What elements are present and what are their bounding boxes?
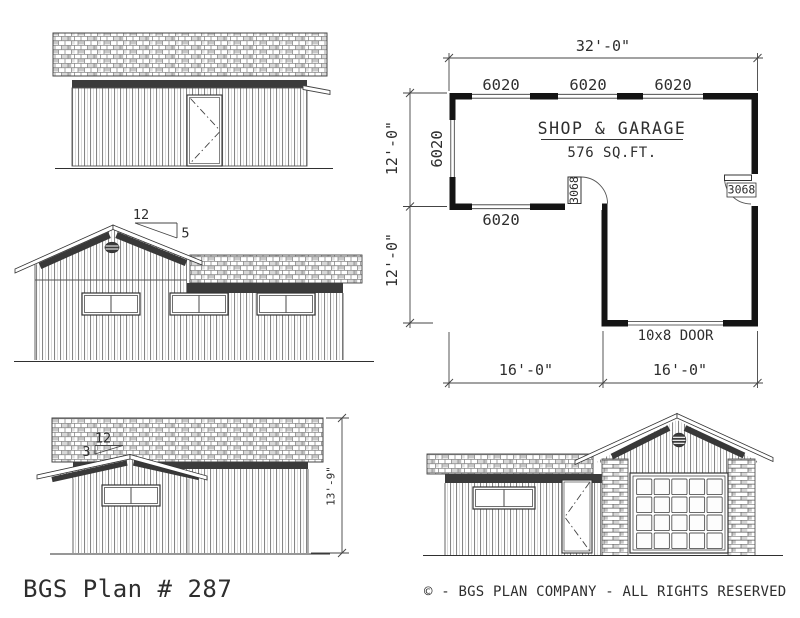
drawing-sheet: 12 5 12 3 13'-9" — [0, 0, 800, 618]
window-1 — [82, 293, 140, 315]
roof-shingle-band — [53, 33, 327, 76]
window-3 — [257, 293, 315, 315]
plan-number: BGS Plan # 287 — [23, 575, 232, 603]
eave-shadow-band — [72, 80, 307, 88]
height-dim-label: 13'-9" — [325, 466, 338, 506]
garage-door — [630, 473, 728, 553]
dim-bottom-right-label: 16'-0" — [653, 361, 707, 379]
dim-overall-width-label: 32'-0" — [576, 37, 630, 55]
shed-roof-shingles — [190, 255, 362, 283]
siding-strip-above-door — [628, 461, 728, 474]
window-1 — [473, 487, 535, 509]
door-swing-arc — [581, 177, 608, 204]
attic-vent — [672, 433, 686, 447]
wall-step — [602, 204, 608, 327]
siding-wall — [73, 469, 308, 553]
window-opening-left — [450, 120, 456, 177]
room-area: 576 SQ.FT. — [567, 145, 656, 161]
window-2 — [170, 293, 228, 315]
floor-plan: 3068 3068 10x8 DOOR SHOP & GARAGE 576 SQ… — [383, 37, 763, 388]
pitch-run-label: 12 — [95, 431, 111, 447]
interior-door-label: 3068 — [567, 176, 581, 204]
dimension-bottom-widths: 16'-0" 16'-0" — [443, 331, 763, 388]
window-label-top-2: 6020 — [569, 76, 606, 94]
window-label-middle: 6020 — [482, 211, 519, 229]
entry-door — [187, 95, 222, 166]
eave-shadow-band — [187, 283, 343, 293]
side-door-label: 3068 — [728, 183, 756, 197]
window-label-top-3: 6020 — [654, 76, 691, 94]
brick-pillar-right — [728, 459, 755, 556]
entry-door — [562, 480, 592, 553]
dimension-left-depths: 12'-0" 12'-0" — [383, 88, 447, 328]
pitch-run-label: 12 — [133, 207, 149, 223]
copyright-notice: © - BGS PLAN COMPANY - ALL RIGHTS RESERV… — [424, 584, 786, 600]
dim-lower-depth-label: 12'-0" — [383, 233, 401, 287]
window-label-top-1: 6020 — [482, 76, 519, 94]
blueprint-svg: 12 5 12 3 13'-9" — [0, 0, 800, 618]
attic-vent — [105, 242, 119, 252]
window-1 — [102, 485, 160, 506]
footer: BGS Plan # 287 © - BGS PLAN COMPANY - AL… — [23, 575, 786, 603]
elevation-middle-left: 12 5 — [14, 207, 374, 362]
elevation-top-left — [53, 33, 333, 169]
window-opening-middle — [472, 204, 530, 211]
brick-pillar-left — [602, 459, 628, 556]
dim-upper-depth-label: 12'-0" — [383, 121, 401, 175]
roof-shingle-band — [427, 454, 593, 474]
dim-bottom-left-label: 16'-0" — [499, 361, 553, 379]
interior-door: 3068 — [565, 176, 608, 210]
elevation-bottom-right — [423, 414, 783, 556]
side-door: 3068 — [725, 174, 759, 206]
garage-door-label: 10x8 DOOR — [638, 328, 714, 344]
garage-door-opening: 10x8 DOOR — [628, 320, 723, 344]
window-label-left: 6020 — [428, 130, 446, 167]
roof-shingle-band — [52, 418, 323, 462]
wall-right — [752, 93, 759, 327]
room-title: SHOP & GARAGE — [538, 119, 687, 138]
elevation-bottom-left: 12 3 13'-9" — [37, 414, 349, 557]
pitch-rise-label: 5 — [181, 226, 189, 242]
pitch-rise-label: 3 — [82, 444, 90, 460]
